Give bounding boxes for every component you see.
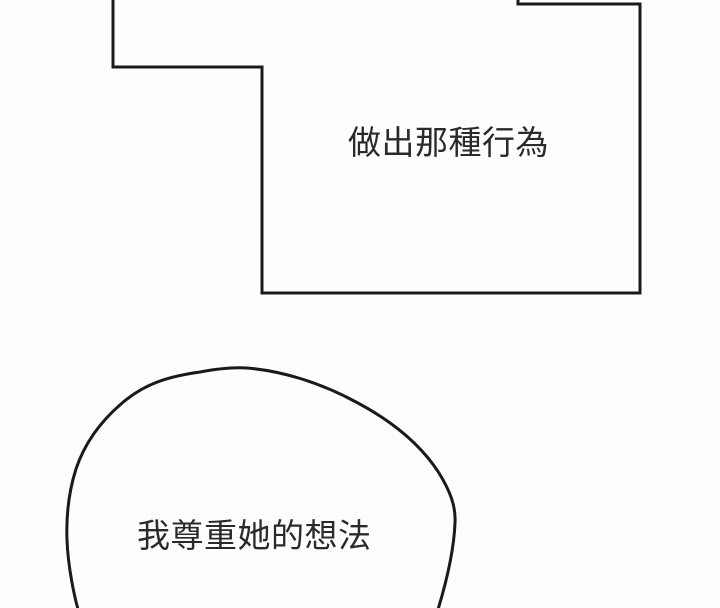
speech-bubble-dialogue-text: 我尊重她的想法 (137, 517, 372, 555)
top-panel-dialogue-text: 做出那種行為 (348, 124, 549, 162)
speech-bubble-outline (67, 368, 455, 608)
comic-page: 做出那種行為 我尊重她的想法 (0, 0, 720, 608)
